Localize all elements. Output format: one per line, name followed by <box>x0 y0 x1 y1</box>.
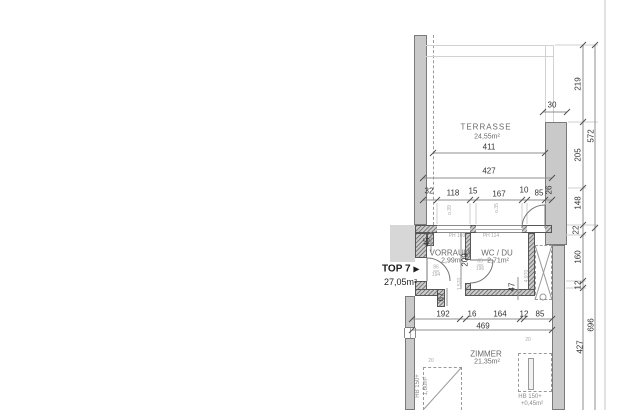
dim-right-inner-6: 427 <box>576 340 585 353</box>
annotation-niche-right-1: HB 150+ <box>518 394 542 400</box>
dim-right-outer-0: 572 <box>587 129 596 142</box>
dim-mid-seg-2: 164 <box>493 310 506 319</box>
room-label-terrasse: TERRASSE <box>460 123 511 132</box>
dim-right-inner-2: 148 <box>574 196 583 209</box>
shaft-outline <box>535 245 552 300</box>
dim-stub: 67 <box>437 293 446 302</box>
wc-bottom-wall <box>465 289 535 296</box>
dim-top-seg-6: 26 <box>545 186 554 195</box>
zimmer-left-wall-lower <box>405 338 415 410</box>
dim-block: 30 <box>548 101 557 110</box>
right-exterior-wall <box>552 245 565 410</box>
room-label-zimmer: ZIMMER <box>470 350 502 359</box>
dim-terrace-width-outer: 427 <box>482 167 495 176</box>
room-area-wc: 2,71m² <box>487 258 509 265</box>
dim-vorraum-height: 209 <box>461 253 470 266</box>
dim-top-seg-2: 15 <box>469 187 478 196</box>
annotation-entry-door-height: 194 <box>432 272 440 278</box>
annotation-niche-left-2: 1,60m² <box>423 377 429 396</box>
wc-right-wall <box>528 233 535 295</box>
annotation-ph-right: PH 114 <box>483 233 499 239</box>
annotation-small-a: 20 <box>428 358 434 364</box>
dim-shaft: 47 <box>508 283 517 292</box>
annotation-parapet-b: o.35 <box>494 203 500 213</box>
top-wall-window-2 <box>476 225 522 233</box>
annotation-entry-door-width: 86 <box>433 265 439 272</box>
adjacent-unit-shade <box>390 225 415 262</box>
dim-right-inner-0: 219 <box>574 77 583 90</box>
annotation-wc-door-width: 65 <box>477 259 483 266</box>
dim-mid-width: 469 <box>476 322 489 331</box>
dim-right-outer-1: 696 <box>587 318 596 331</box>
annotation-parapet-a: o.39 <box>447 205 453 215</box>
radiator <box>528 358 534 390</box>
unit-arrow-icon: ▶ <box>413 265 419 274</box>
terrace-railing-top-line2 <box>425 56 553 57</box>
terrace-railing-right-line <box>545 45 546 122</box>
dim-mid-seg-0: 192 <box>436 310 449 319</box>
unit-area: 27,05m² <box>384 277 417 287</box>
terrace-railing-top-line <box>425 45 553 46</box>
dim-niche: 45 <box>423 238 432 247</box>
unit-label: TOP 7 ▶ <box>382 264 419 275</box>
dim-top-seg-4: 10 <box>520 186 529 195</box>
dim-top-seg-3: 167 <box>492 190 505 199</box>
terrace-left-wall <box>414 35 427 225</box>
annotation-niche-left-1: HB 150+ <box>415 374 421 398</box>
room-area-zimmer: 21,35m² <box>474 359 500 366</box>
dim-top-seg-0: 32 <box>425 187 434 196</box>
room-label-wc: WC / DU <box>481 249 513 258</box>
top-wall-window-1 <box>437 225 470 233</box>
zimmer-left-wall-upper <box>405 296 415 328</box>
dim-right-inner-3: 22 <box>572 226 581 235</box>
annotation-wc-door-height: 196 <box>476 266 484 272</box>
dim-right-inner-1: 205 <box>574 148 583 161</box>
dim-top-seg-5: 85 <box>535 189 544 198</box>
annotation-level-b: 4.970 <box>524 270 530 283</box>
plan-linework <box>0 0 620 410</box>
dim-mid-seg-1: 16 <box>468 310 477 319</box>
dim-top-seg-1: 118 <box>447 189 460 198</box>
room-area-terrasse: 24,55m² <box>474 134 500 141</box>
zimmer-left-window <box>404 328 416 338</box>
annotation-small-b: 20 <box>525 337 531 343</box>
terrace-edge-dashed-line <box>433 35 434 225</box>
annotation-niche-right-2: +0,45m² <box>521 401 543 407</box>
zimmer-niche-right <box>518 353 552 392</box>
dim-mid-seg-4: 85 <box>536 310 545 319</box>
unit-name: TOP 7 <box>382 264 411 275</box>
dim-mid-seg-3: 12 <box>520 310 529 319</box>
dim-terrace-width: 411 <box>483 143 496 152</box>
terrace-railing-right-line2 <box>553 45 554 122</box>
dim-right-inner-5: 12 <box>574 281 583 290</box>
terrace-door-opening <box>527 226 545 232</box>
annotation-ph-left: PH 103 <box>449 233 466 239</box>
annotation-level-a: 1.570 <box>457 278 463 291</box>
dim-right-inner-4: 160 <box>574 250 583 263</box>
floorplan-canvas: TERRASSE 24,55m² VORRAUM 2,99m² WC / DU … <box>0 0 620 410</box>
